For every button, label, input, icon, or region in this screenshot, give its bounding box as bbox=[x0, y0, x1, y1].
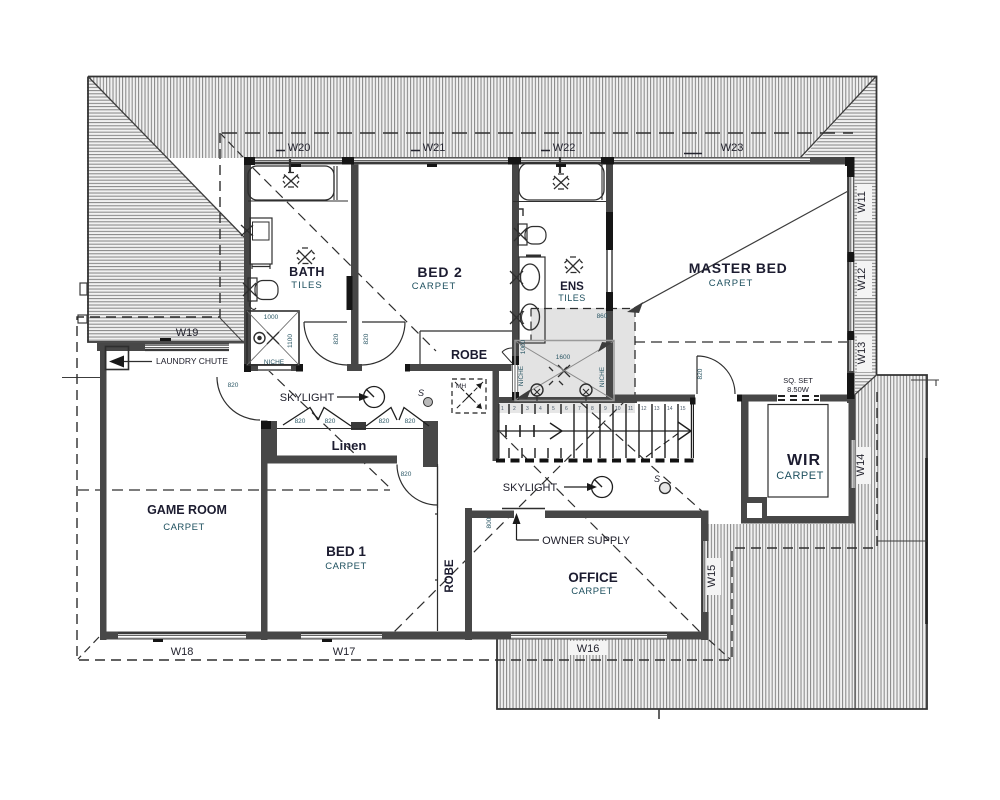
svg-text:W18: W18 bbox=[171, 646, 194, 658]
svg-text:W12: W12 bbox=[856, 268, 868, 291]
svg-text:ENS: ENS bbox=[560, 281, 584, 293]
svg-text:14: 14 bbox=[667, 406, 673, 412]
svg-text:1: 1 bbox=[501, 406, 504, 412]
svg-text:W20: W20 bbox=[288, 142, 311, 154]
svg-text:12: 12 bbox=[641, 406, 647, 412]
svg-text:W19: W19 bbox=[176, 327, 199, 339]
svg-text:W17: W17 bbox=[333, 646, 356, 658]
svg-text:LAUNDRY CHUTE: LAUNDRY CHUTE bbox=[156, 356, 228, 366]
svg-text:820: 820 bbox=[401, 471, 412, 478]
svg-text:13: 13 bbox=[654, 406, 660, 412]
svg-text:W21: W21 bbox=[423, 142, 446, 154]
svg-text:S: S bbox=[654, 474, 660, 484]
svg-text:ROBE: ROBE bbox=[451, 348, 487, 362]
svg-text:CARPET: CARPET bbox=[325, 561, 367, 572]
svg-text:GAME ROOM: GAME ROOM bbox=[147, 503, 227, 517]
svg-text:SQ. SET: SQ. SET bbox=[783, 376, 813, 385]
svg-text:820: 820 bbox=[333, 333, 340, 344]
svg-text:TILES: TILES bbox=[291, 280, 322, 291]
svg-text:TILES: TILES bbox=[558, 293, 586, 303]
svg-text:SKYLIGHT: SKYLIGHT bbox=[280, 392, 335, 404]
svg-text:NICHE: NICHE bbox=[599, 366, 606, 387]
svg-text:5: 5 bbox=[552, 406, 555, 412]
svg-text:CARPET: CARPET bbox=[776, 470, 824, 482]
svg-text:10: 10 bbox=[615, 406, 621, 412]
svg-text:6: 6 bbox=[565, 406, 568, 412]
svg-text:1000: 1000 bbox=[520, 339, 527, 354]
svg-text:820: 820 bbox=[295, 418, 306, 425]
svg-text:860: 860 bbox=[597, 313, 608, 320]
svg-text:MH: MH bbox=[456, 383, 466, 390]
svg-text:CARPET: CARPET bbox=[163, 522, 205, 533]
svg-text:1600: 1600 bbox=[556, 354, 571, 361]
svg-text:820: 820 bbox=[405, 418, 416, 425]
svg-text:9: 9 bbox=[604, 406, 607, 412]
svg-text:W23: W23 bbox=[721, 142, 744, 154]
svg-text:W13: W13 bbox=[856, 342, 868, 365]
svg-text:WIR: WIR bbox=[787, 452, 821, 469]
svg-text:SKYLIGHT: SKYLIGHT bbox=[503, 482, 558, 494]
svg-text:MASTER BED: MASTER BED bbox=[689, 260, 788, 276]
svg-text:W16: W16 bbox=[577, 643, 600, 655]
svg-text:W11: W11 bbox=[856, 191, 868, 213]
svg-text:2: 2 bbox=[513, 406, 516, 412]
svg-text:BED 2: BED 2 bbox=[417, 264, 462, 280]
svg-text:W22: W22 bbox=[553, 142, 576, 154]
svg-text:Linen: Linen bbox=[332, 438, 367, 453]
svg-text:8.50W: 8.50W bbox=[787, 385, 810, 394]
svg-text:BATH: BATH bbox=[289, 265, 325, 279]
svg-text:7: 7 bbox=[578, 406, 581, 412]
svg-text:NICHE: NICHE bbox=[518, 365, 525, 386]
svg-text:OWNER SUPPLY: OWNER SUPPLY bbox=[542, 535, 630, 547]
svg-text:11: 11 bbox=[628, 406, 633, 412]
svg-text:4: 4 bbox=[539, 406, 542, 412]
svg-text:ROBE: ROBE bbox=[444, 559, 456, 593]
svg-text:S: S bbox=[418, 388, 424, 398]
svg-text:820: 820 bbox=[697, 368, 704, 379]
svg-text:820: 820 bbox=[228, 382, 239, 389]
svg-text:CARPET: CARPET bbox=[571, 586, 613, 597]
svg-text:1000: 1000 bbox=[264, 314, 279, 321]
svg-text:3: 3 bbox=[526, 406, 529, 412]
svg-text:1100: 1100 bbox=[287, 334, 294, 348]
svg-text:820: 820 bbox=[363, 333, 370, 344]
svg-text:820: 820 bbox=[325, 418, 336, 425]
svg-text:W15: W15 bbox=[706, 565, 718, 588]
svg-text:CARPET: CARPET bbox=[709, 278, 754, 289]
svg-text:W14: W14 bbox=[855, 454, 867, 477]
svg-text:CARPET: CARPET bbox=[412, 281, 457, 292]
svg-text:800: 800 bbox=[486, 517, 493, 528]
svg-text:8: 8 bbox=[591, 406, 594, 412]
svg-text:NICHE: NICHE bbox=[264, 359, 285, 366]
svg-text:BED 1: BED 1 bbox=[326, 544, 366, 559]
svg-text:OFFICE: OFFICE bbox=[568, 570, 618, 585]
svg-text:820: 820 bbox=[379, 418, 390, 425]
svg-text:15: 15 bbox=[680, 406, 686, 412]
